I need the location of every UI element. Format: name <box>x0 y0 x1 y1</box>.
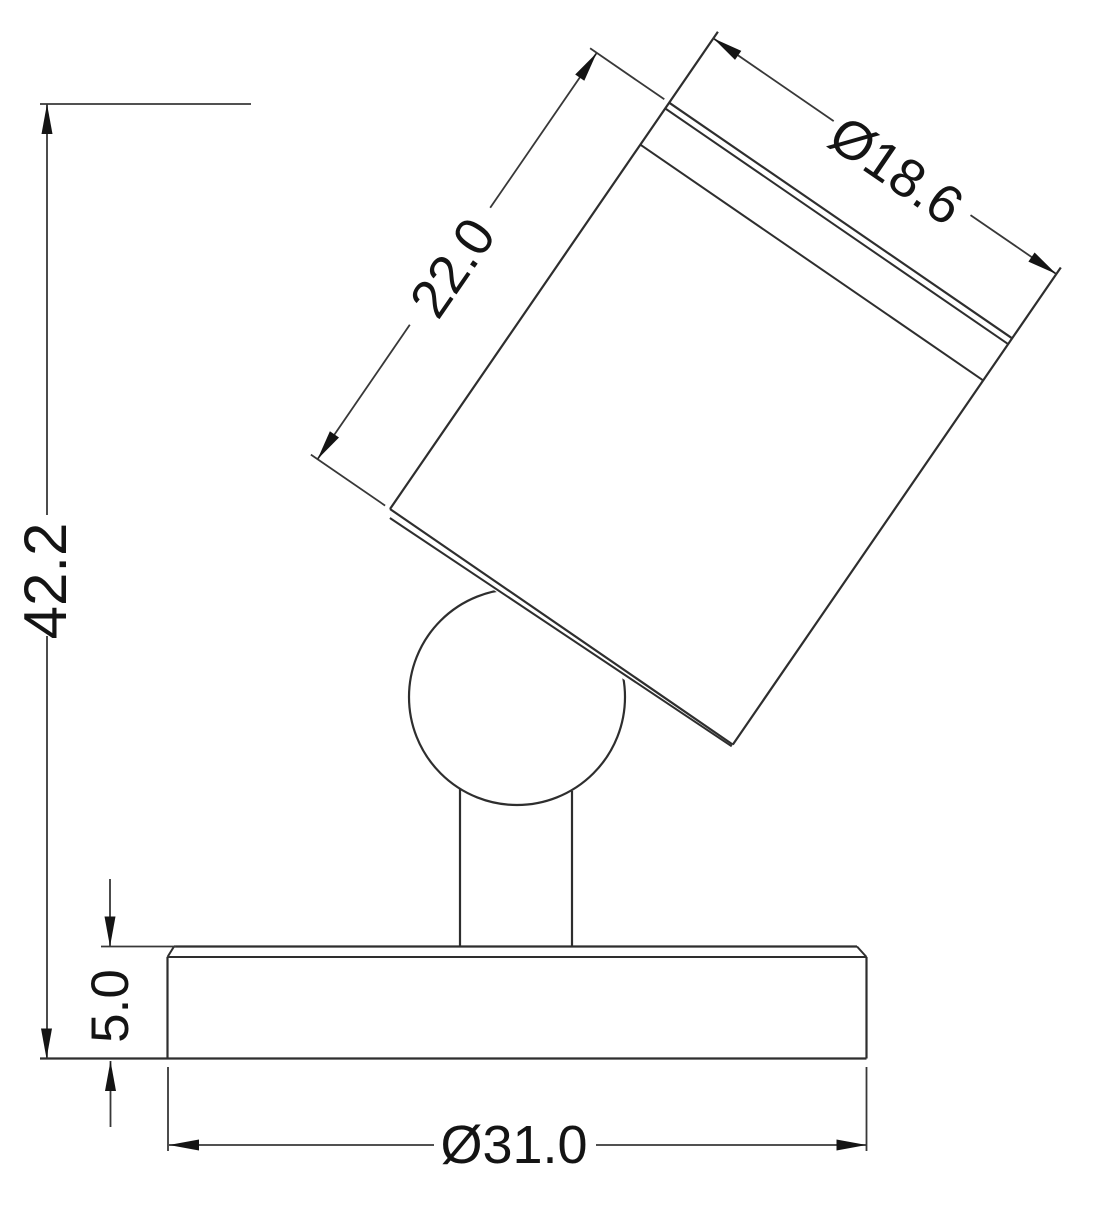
svg-text:Ø31.0: Ø31.0 <box>440 1115 587 1175</box>
svg-text:42.2: 42.2 <box>12 523 79 640</box>
svg-text:5.0: 5.0 <box>81 969 140 1043</box>
